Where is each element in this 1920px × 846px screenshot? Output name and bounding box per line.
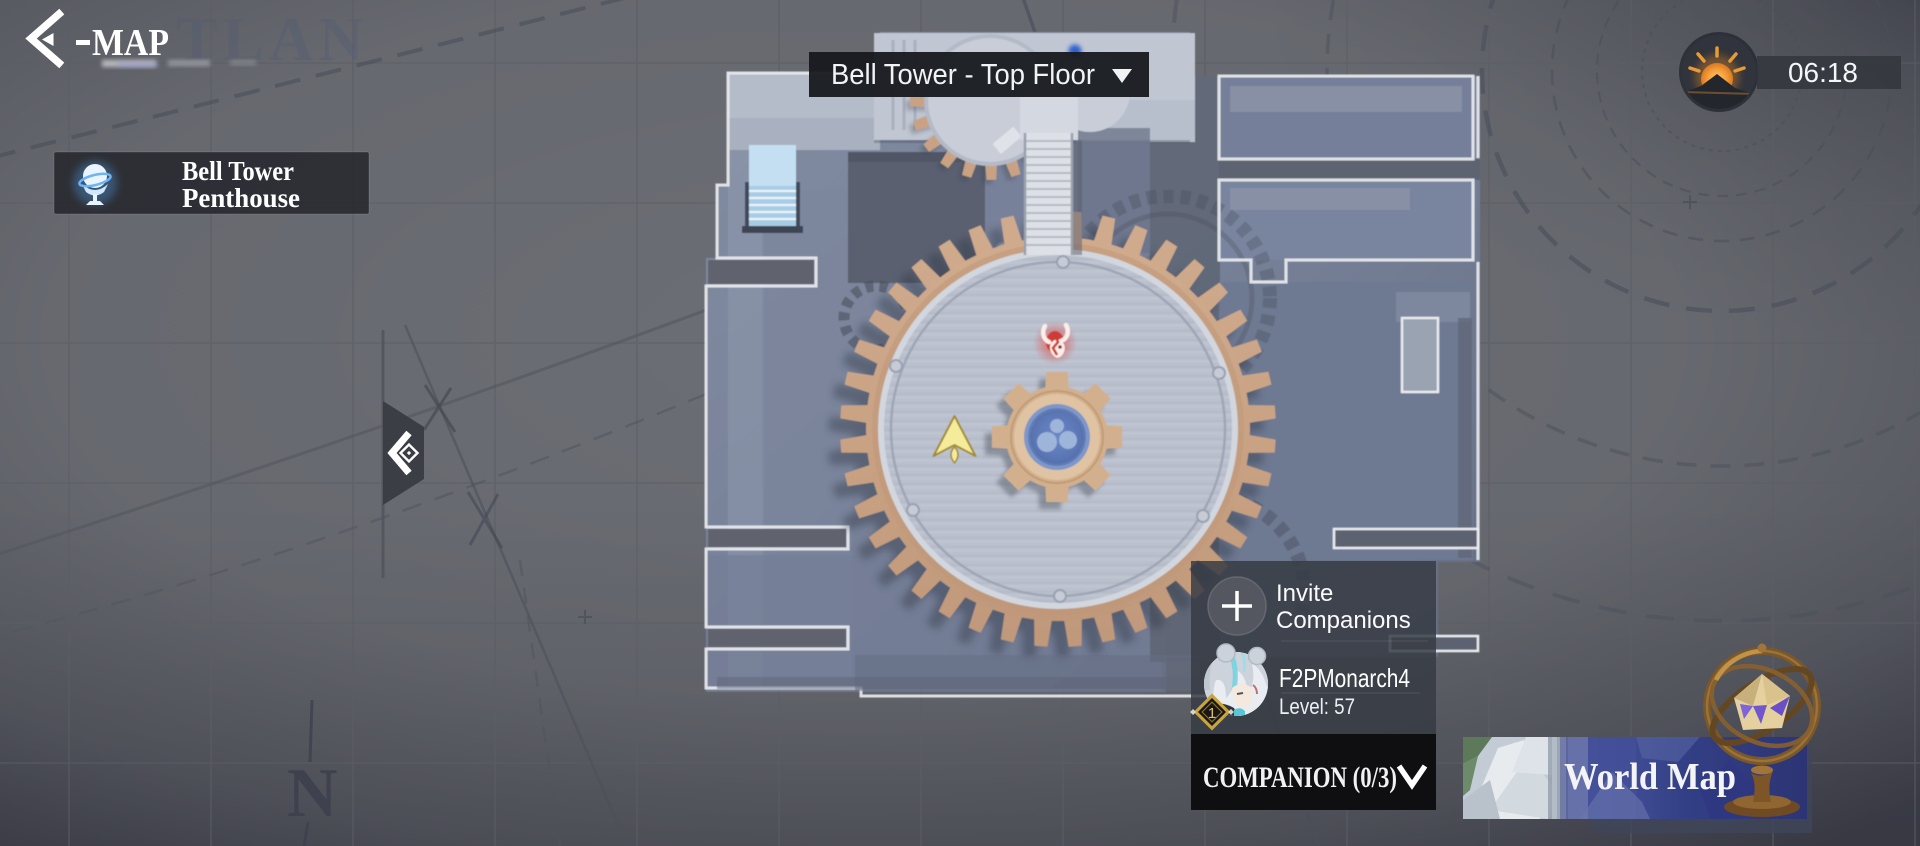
svg-text:1: 1: [1208, 705, 1216, 722]
svg-text:World Map: World Map: [1564, 756, 1736, 798]
svg-text:Invite: Invite: [1276, 580, 1333, 607]
svg-text:Bell Tower - Top Floor: Bell Tower - Top Floor: [831, 59, 1095, 91]
svg-text:F2PMonarch4: F2PMonarch4: [1279, 663, 1410, 693]
svg-text:Level: 57: Level: 57: [1279, 694, 1355, 719]
svg-text:Penthouse: Penthouse: [182, 183, 300, 213]
svg-text:Bell Tower: Bell Tower: [182, 156, 294, 186]
svg-text:COMPANION (0/3): COMPANION (0/3): [1203, 761, 1397, 794]
svg-text:Companions: Companions: [1276, 607, 1411, 634]
svg-text:06:18: 06:18: [1788, 57, 1858, 88]
svg-text:N: N: [287, 755, 338, 832]
svg-text:MAP: MAP: [92, 22, 169, 64]
